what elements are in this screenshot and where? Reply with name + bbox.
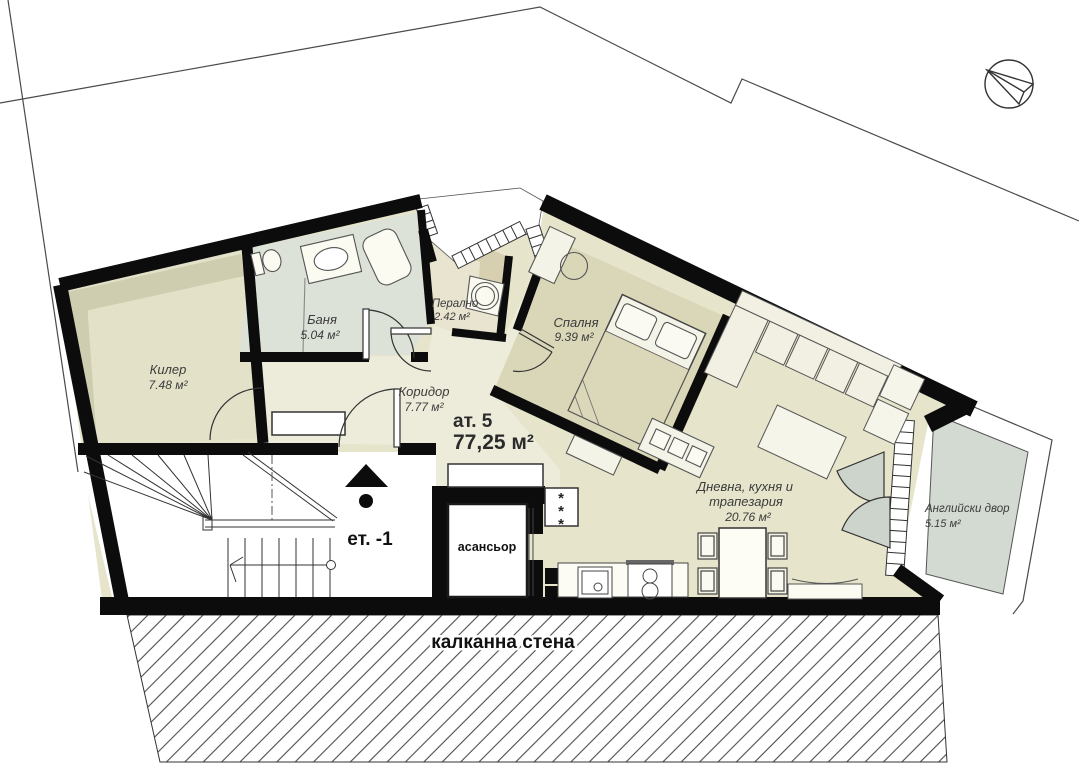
peralno-area: 2.42 м² — [433, 311, 470, 323]
apartment-area: 77,25 м² — [453, 431, 534, 454]
chair-inner — [701, 571, 714, 591]
elevator-label: асансьор — [458, 540, 517, 554]
chair-inner — [701, 536, 714, 556]
dnevna-area: 20.76 м² — [724, 510, 772, 524]
floor-plan-page: * * * Килер 7.48 м² Баня 5.04 м² Перално… — [0, 0, 1079, 763]
koridor-name: Коридор — [399, 384, 450, 399]
floor-level-label: ет. -1 — [347, 529, 393, 550]
dining-table — [719, 528, 766, 598]
floor-plan-canvas: * * * Килер 7.48 м² Баня 5.04 м² Перално… — [0, 0, 1079, 763]
banya-name: Баня — [307, 312, 337, 327]
chair-inner — [771, 571, 784, 591]
boundary-line-left — [8, 0, 78, 472]
party-wall-label: калканна стена — [431, 632, 575, 653]
koridor-area: 7.77 м² — [405, 400, 445, 414]
banya-area: 5.04 м² — [301, 328, 341, 342]
dvor-name: Английски двор — [924, 503, 1010, 515]
kiler-area: 7.48 м² — [149, 378, 189, 392]
vent-symbols: * * * — [558, 490, 564, 533]
kiler-name: Килер — [150, 362, 187, 377]
dnevna-name-2: трапезария — [709, 494, 783, 509]
niche-koridor — [272, 412, 345, 435]
spalnya-name: Спалня — [553, 315, 598, 330]
stairwell-floor — [78, 452, 436, 597]
dvor-area: 5.15 м² — [925, 518, 961, 530]
dnevna-name-1: Дневна, кухня и — [695, 479, 793, 494]
peralno-name: Перално — [432, 298, 479, 310]
spalnya-area: 9.39 м² — [555, 330, 595, 344]
boundary-line-top — [0, 7, 1079, 221]
vent-symbol: * — [558, 516, 564, 533]
chair-inner — [771, 536, 784, 556]
wall-bottom — [100, 597, 940, 615]
north-arrow-icon — [985, 60, 1033, 108]
niche-elevator — [448, 464, 543, 487]
apartment-label: ат. 5 — [453, 411, 493, 432]
